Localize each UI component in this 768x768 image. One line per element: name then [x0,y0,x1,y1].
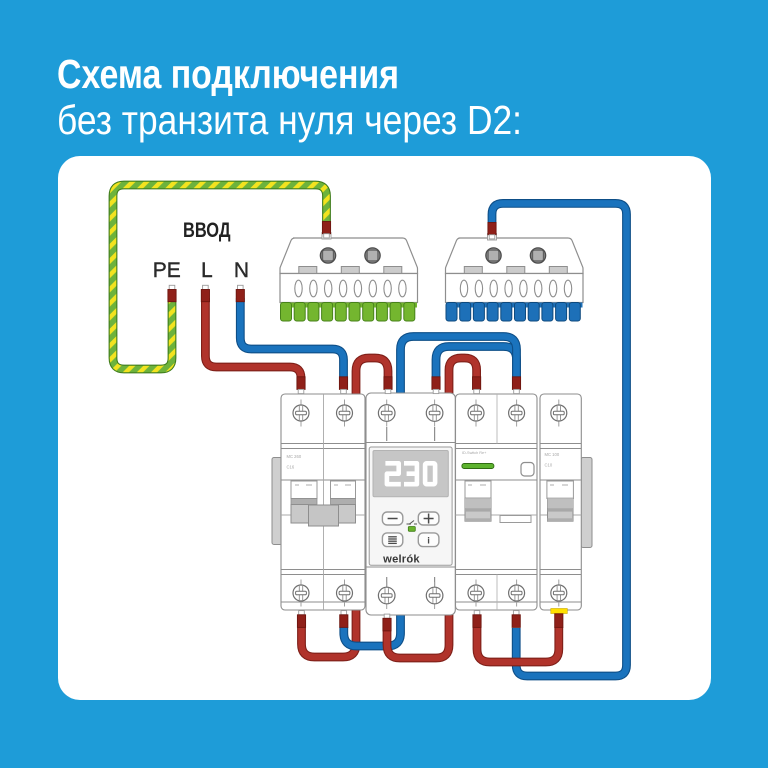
svg-text:L: L [201,259,213,282]
svg-text:ID-Switch Re+: ID-Switch Re+ [462,451,487,455]
svg-text:welrók: welrók [382,554,420,566]
svg-text:MC 260: MC 260 [287,454,302,459]
svg-text:PE: PE [153,259,181,282]
svg-text:C16: C16 [287,465,295,470]
svg-text:MC 100: MC 100 [545,452,560,457]
svg-text:ВВОД: ВВОД [183,219,231,242]
svg-text:N: N [234,259,249,282]
svg-text:i: i [427,536,430,547]
svg-text:C10: C10 [545,463,553,468]
svg-text:Схема подключения: Схема подключения [57,51,399,97]
svg-text:без транзита нуля через D2:: без транзита нуля через D2: [57,97,522,143]
